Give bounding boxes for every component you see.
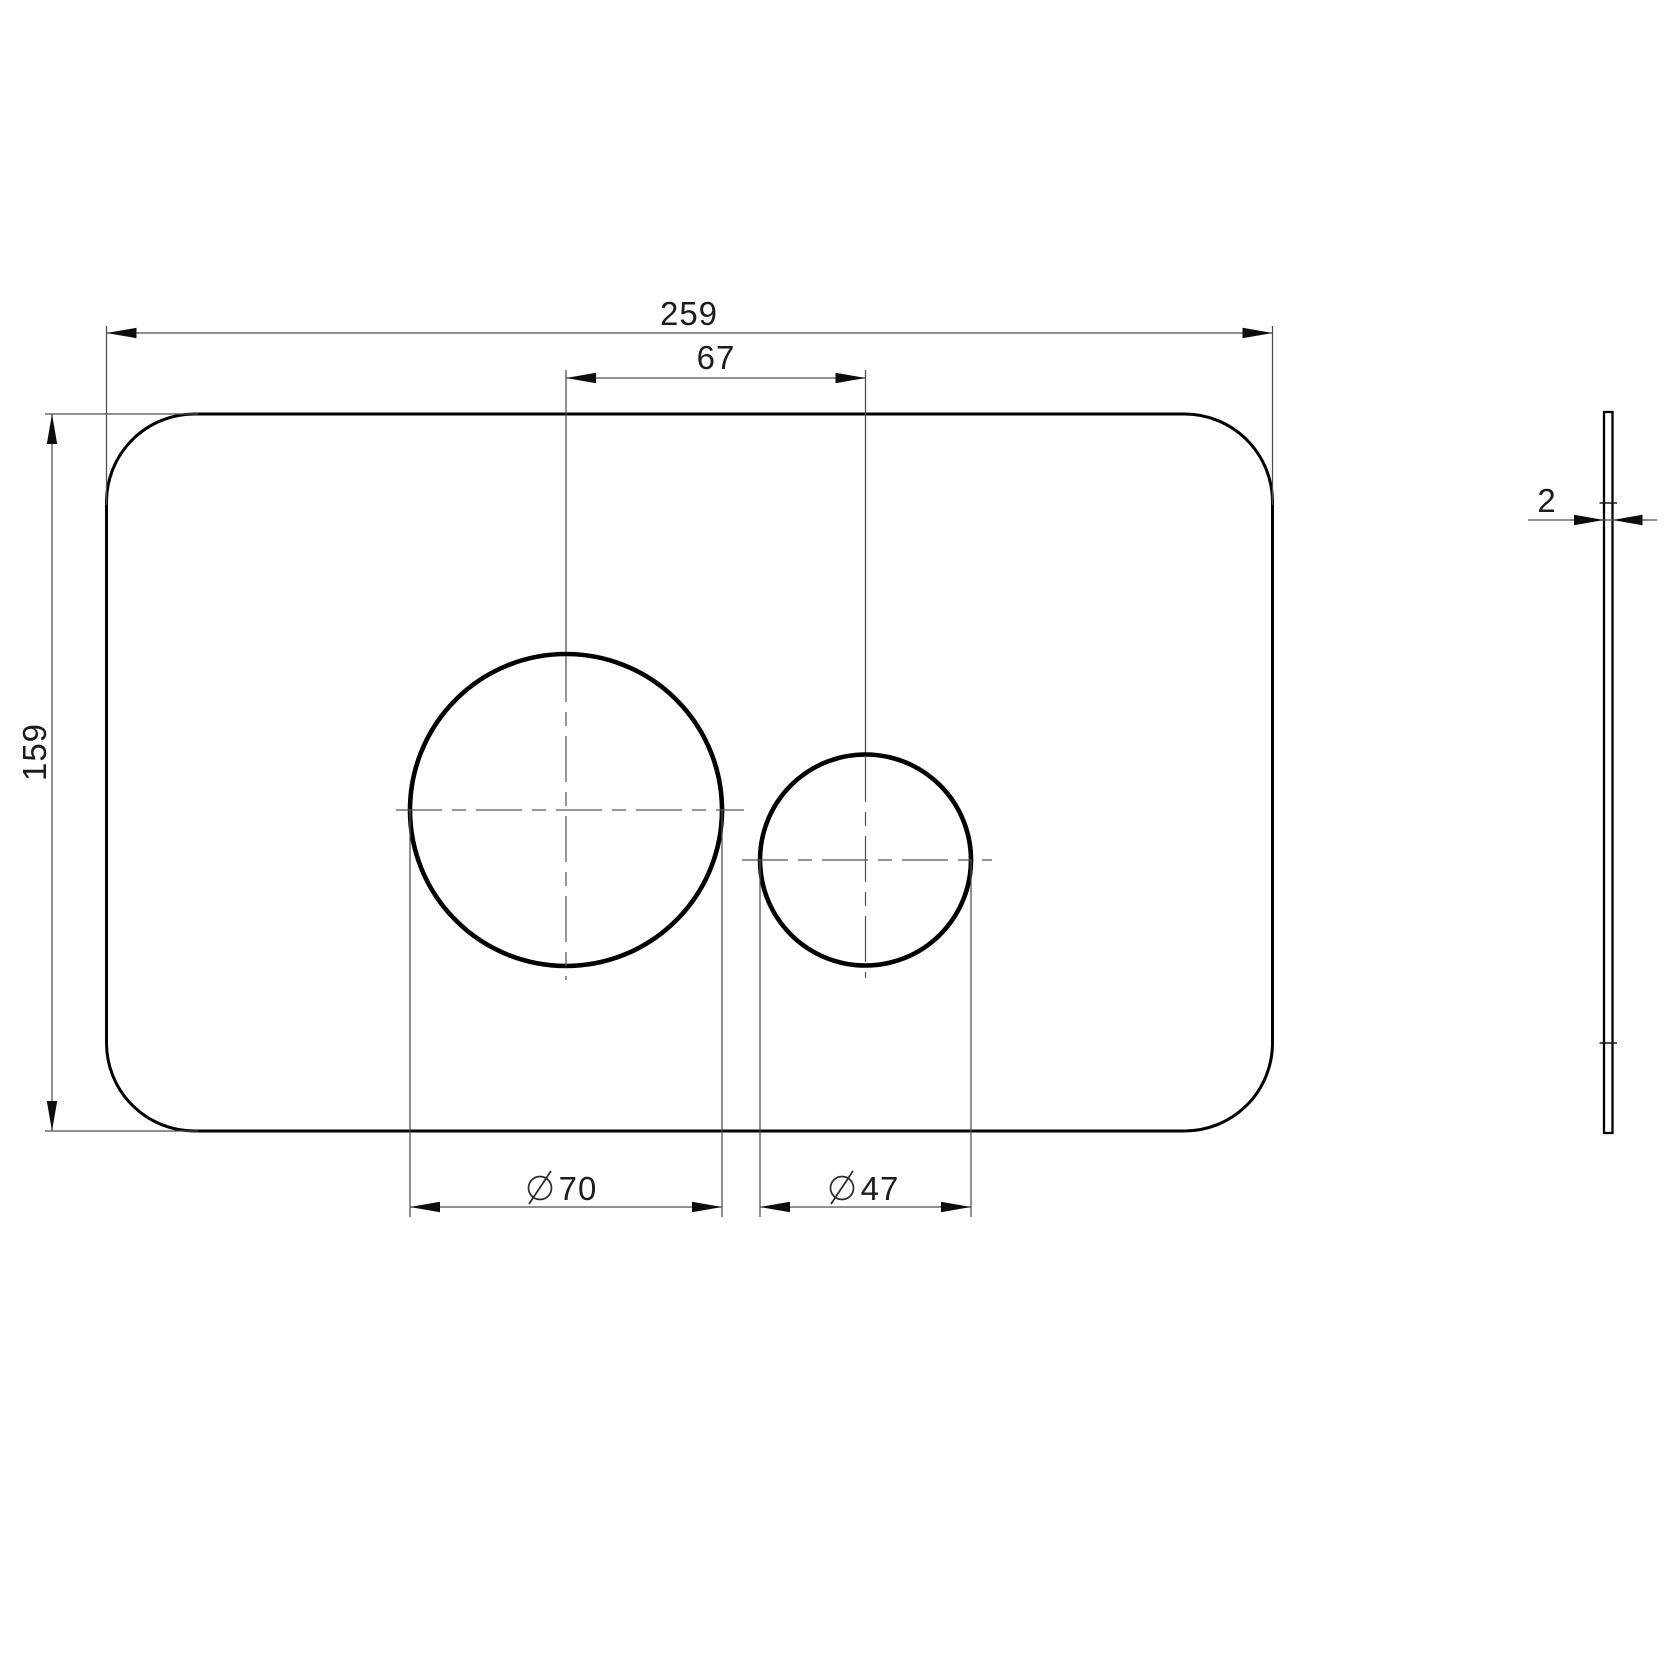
front-view: [107, 370, 1273, 1131]
height-arrow-top: [47, 414, 57, 444]
diameter-symbol-icon: [831, 1171, 854, 1204]
technical-drawing-canvas: 259 67 159: [0, 0, 1668, 1668]
large-diameter-arrow-left: [410, 1202, 440, 1212]
dimension-thickness: 2: [1528, 482, 1657, 525]
small-diameter-arrow-right: [941, 1202, 971, 1212]
height-arrow-bottom: [47, 1101, 57, 1131]
thickness-arrow-left: [1574, 515, 1604, 525]
large-diameter-arrow-right: [692, 1202, 722, 1212]
height-dimension-label: 159: [16, 723, 53, 781]
drawing-stage: 259 67 159: [0, 0, 1668, 1668]
spacing-arrow-right: [836, 373, 866, 383]
width-dimension-label: 259: [660, 295, 718, 332]
spacing-arrow-left: [566, 373, 596, 383]
diameter-symbol-icon: [529, 1171, 552, 1204]
thickness-dimension-label: 2: [1537, 482, 1556, 519]
width-arrow-right: [1243, 328, 1273, 338]
small-diameter-label: 47: [861, 1170, 900, 1207]
spacing-dimension-label: 67: [697, 339, 736, 376]
width-arrow-left: [107, 328, 137, 338]
large-diameter-label: 70: [559, 1170, 598, 1207]
dimension-hole-spacing: 67: [566, 339, 866, 383]
small-diameter-arrow-left: [760, 1202, 790, 1212]
thickness-arrow-right: [1613, 515, 1643, 525]
